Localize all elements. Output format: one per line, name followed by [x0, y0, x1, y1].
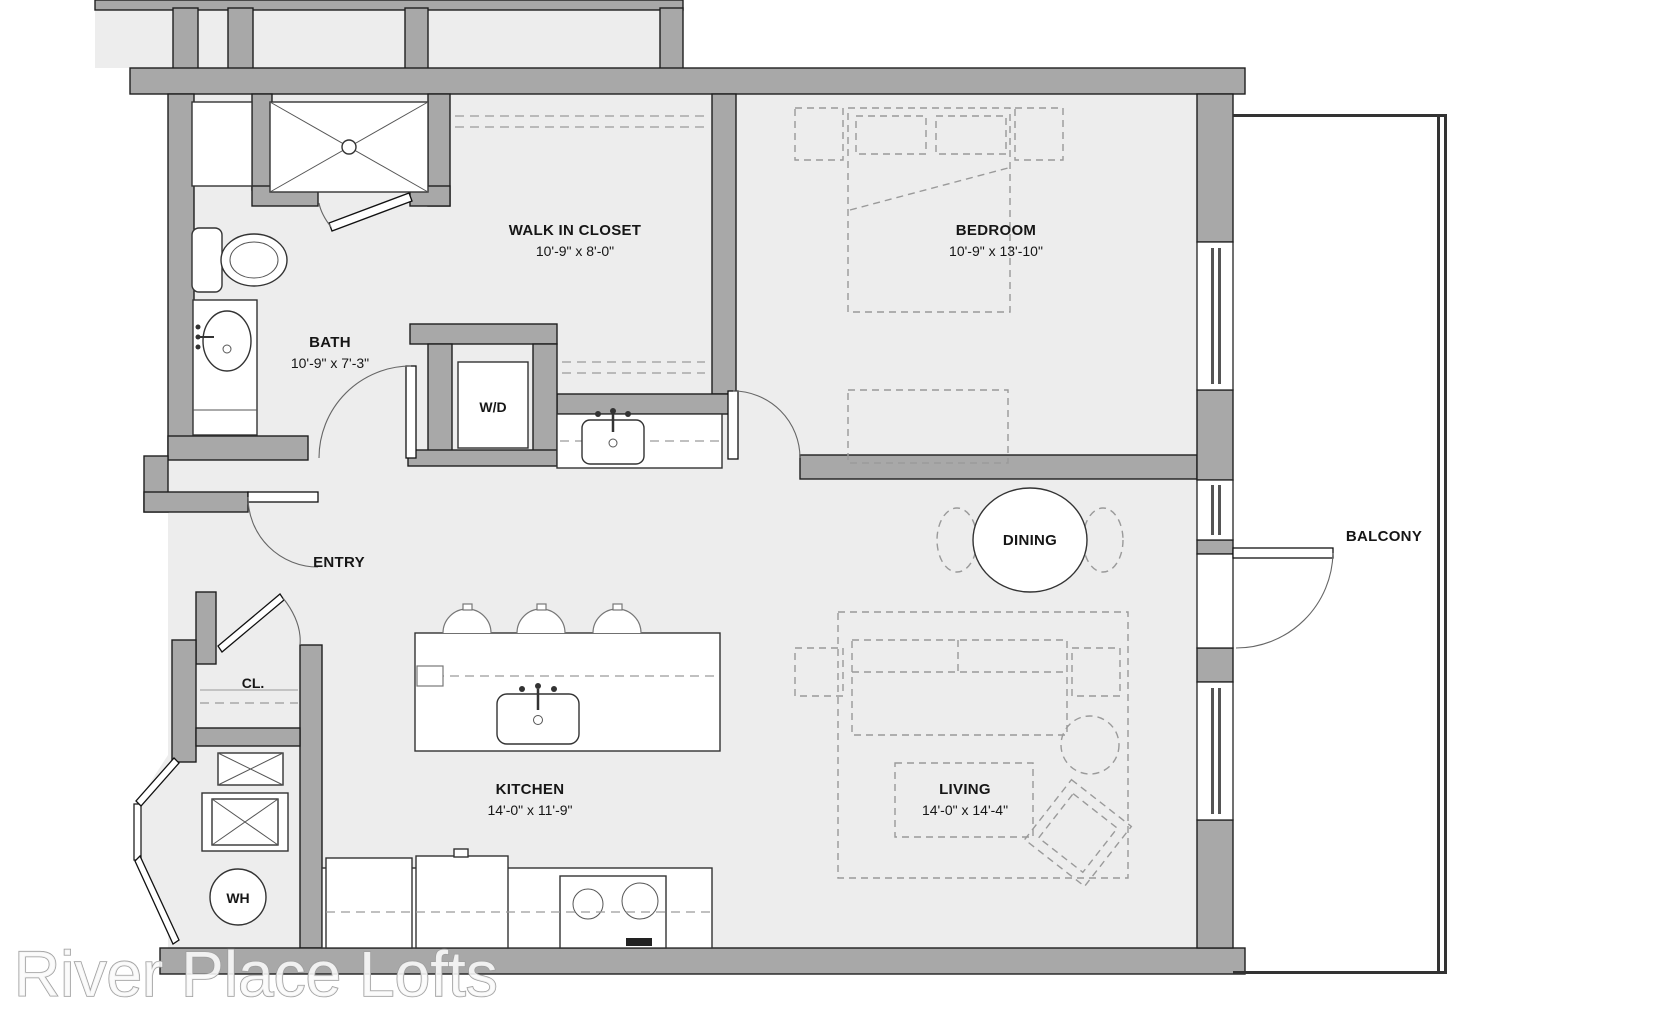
- faucet-dot: [551, 686, 557, 692]
- bedroom-window: [1197, 242, 1233, 390]
- faucet-dot: [196, 345, 201, 350]
- oven-handle: [626, 938, 652, 946]
- dishwasher: [416, 856, 508, 948]
- living-window: [1197, 682, 1233, 820]
- faucet-dot: [610, 408, 616, 414]
- wall-corridor-stub-2: [228, 8, 253, 70]
- wall-right-1: [1197, 94, 1233, 242]
- balcony-railing-outer: [1437, 114, 1440, 974]
- entry-bay-window: [134, 804, 141, 860]
- wall-laundry-left: [428, 344, 452, 458]
- wall-corridor-stub-3: [405, 8, 428, 70]
- bath-vanity: [193, 300, 257, 435]
- dims-living: 14'-0" x 14'-4": [922, 802, 1008, 818]
- label-hall-closet: CL.: [242, 675, 265, 691]
- wall-bedroom-south: [800, 455, 1197, 479]
- refrigerator: [326, 858, 412, 948]
- wall-left: [168, 94, 194, 458]
- label-bedroom: BEDROOM: [956, 222, 1036, 239]
- wall-laundry-top: [410, 324, 557, 344]
- balcony-edge-top: [1233, 114, 1447, 117]
- hvac-box-lower: [202, 793, 288, 851]
- label-kitchen: KITCHEN: [496, 781, 565, 798]
- wall-hall-closet-bottom: [196, 728, 300, 746]
- wall-right-3: [1197, 540, 1233, 554]
- kitchen-wall-counter: [557, 408, 722, 468]
- faucet-dot: [196, 335, 201, 340]
- property-watermark: River Place Lofts: [14, 938, 498, 1010]
- shower: [270, 102, 428, 192]
- wall-right-5: [1197, 820, 1233, 948]
- hvac-box-upper: [218, 753, 283, 785]
- wall-hall-closet-stub: [196, 592, 216, 664]
- floor-plan-page: WALK IN CLOSET 10'-9" x 8'-0" BEDROOM 10…: [0, 0, 1680, 1020]
- wall-corridor-stub-4: [660, 8, 683, 70]
- dining-window: [1197, 480, 1233, 540]
- faucet-dot: [196, 325, 201, 330]
- faucet-dot: [625, 411, 631, 417]
- wall-laundry-right: [533, 344, 557, 458]
- balcony-door: [1197, 548, 1333, 648]
- dims-bath: 10'-9" x 7'-3": [291, 355, 369, 371]
- dims-walk-in-closet: 10'-9" x 8'-0": [536, 243, 614, 259]
- linen-closet: [192, 102, 252, 186]
- wall-linen-divider: [252, 94, 272, 190]
- faucet-dot: [519, 686, 525, 692]
- label-walk-in-closet: WALK IN CLOSET: [509, 222, 642, 239]
- faucet-dot: [595, 411, 601, 417]
- balcony-edge-bottom: [1233, 971, 1447, 974]
- wall-closet-south: [557, 394, 736, 414]
- wall-entry-front: [144, 492, 248, 512]
- label-entry: ENTRY: [313, 554, 365, 571]
- wall-right-2: [1197, 390, 1233, 480]
- label-water-heater: WH: [226, 890, 249, 906]
- wall-right-4: [1197, 648, 1233, 682]
- balcony-railing-inner: [1444, 114, 1447, 974]
- label-washer-dryer: W/D: [479, 399, 506, 415]
- wall-closet-bedroom-divider: [712, 94, 736, 394]
- wall-corridor-stub-1: [173, 8, 198, 70]
- wall-top: [130, 68, 1245, 94]
- dims-bedroom: 10'-9" x 13'-10": [949, 243, 1043, 259]
- label-bath: BATH: [309, 334, 351, 351]
- label-living: LIVING: [939, 781, 991, 798]
- wall-laundry-sill: [408, 450, 557, 466]
- appliance-handle: [454, 849, 468, 857]
- floor-plan-drawing: WALK IN CLOSET 10'-9" x 8'-0" BEDROOM 10…: [0, 0, 1680, 1020]
- wall-bath-south: [168, 436, 308, 460]
- wall-hall-closet-left: [172, 640, 196, 762]
- wall-utility-right: [300, 645, 322, 948]
- label-balcony: BALCONY: [1346, 528, 1422, 545]
- faucet-dot: [535, 683, 541, 689]
- dims-kitchen: 14'-0" x 11'-9": [487, 802, 572, 818]
- label-dining: DINING: [1003, 532, 1057, 549]
